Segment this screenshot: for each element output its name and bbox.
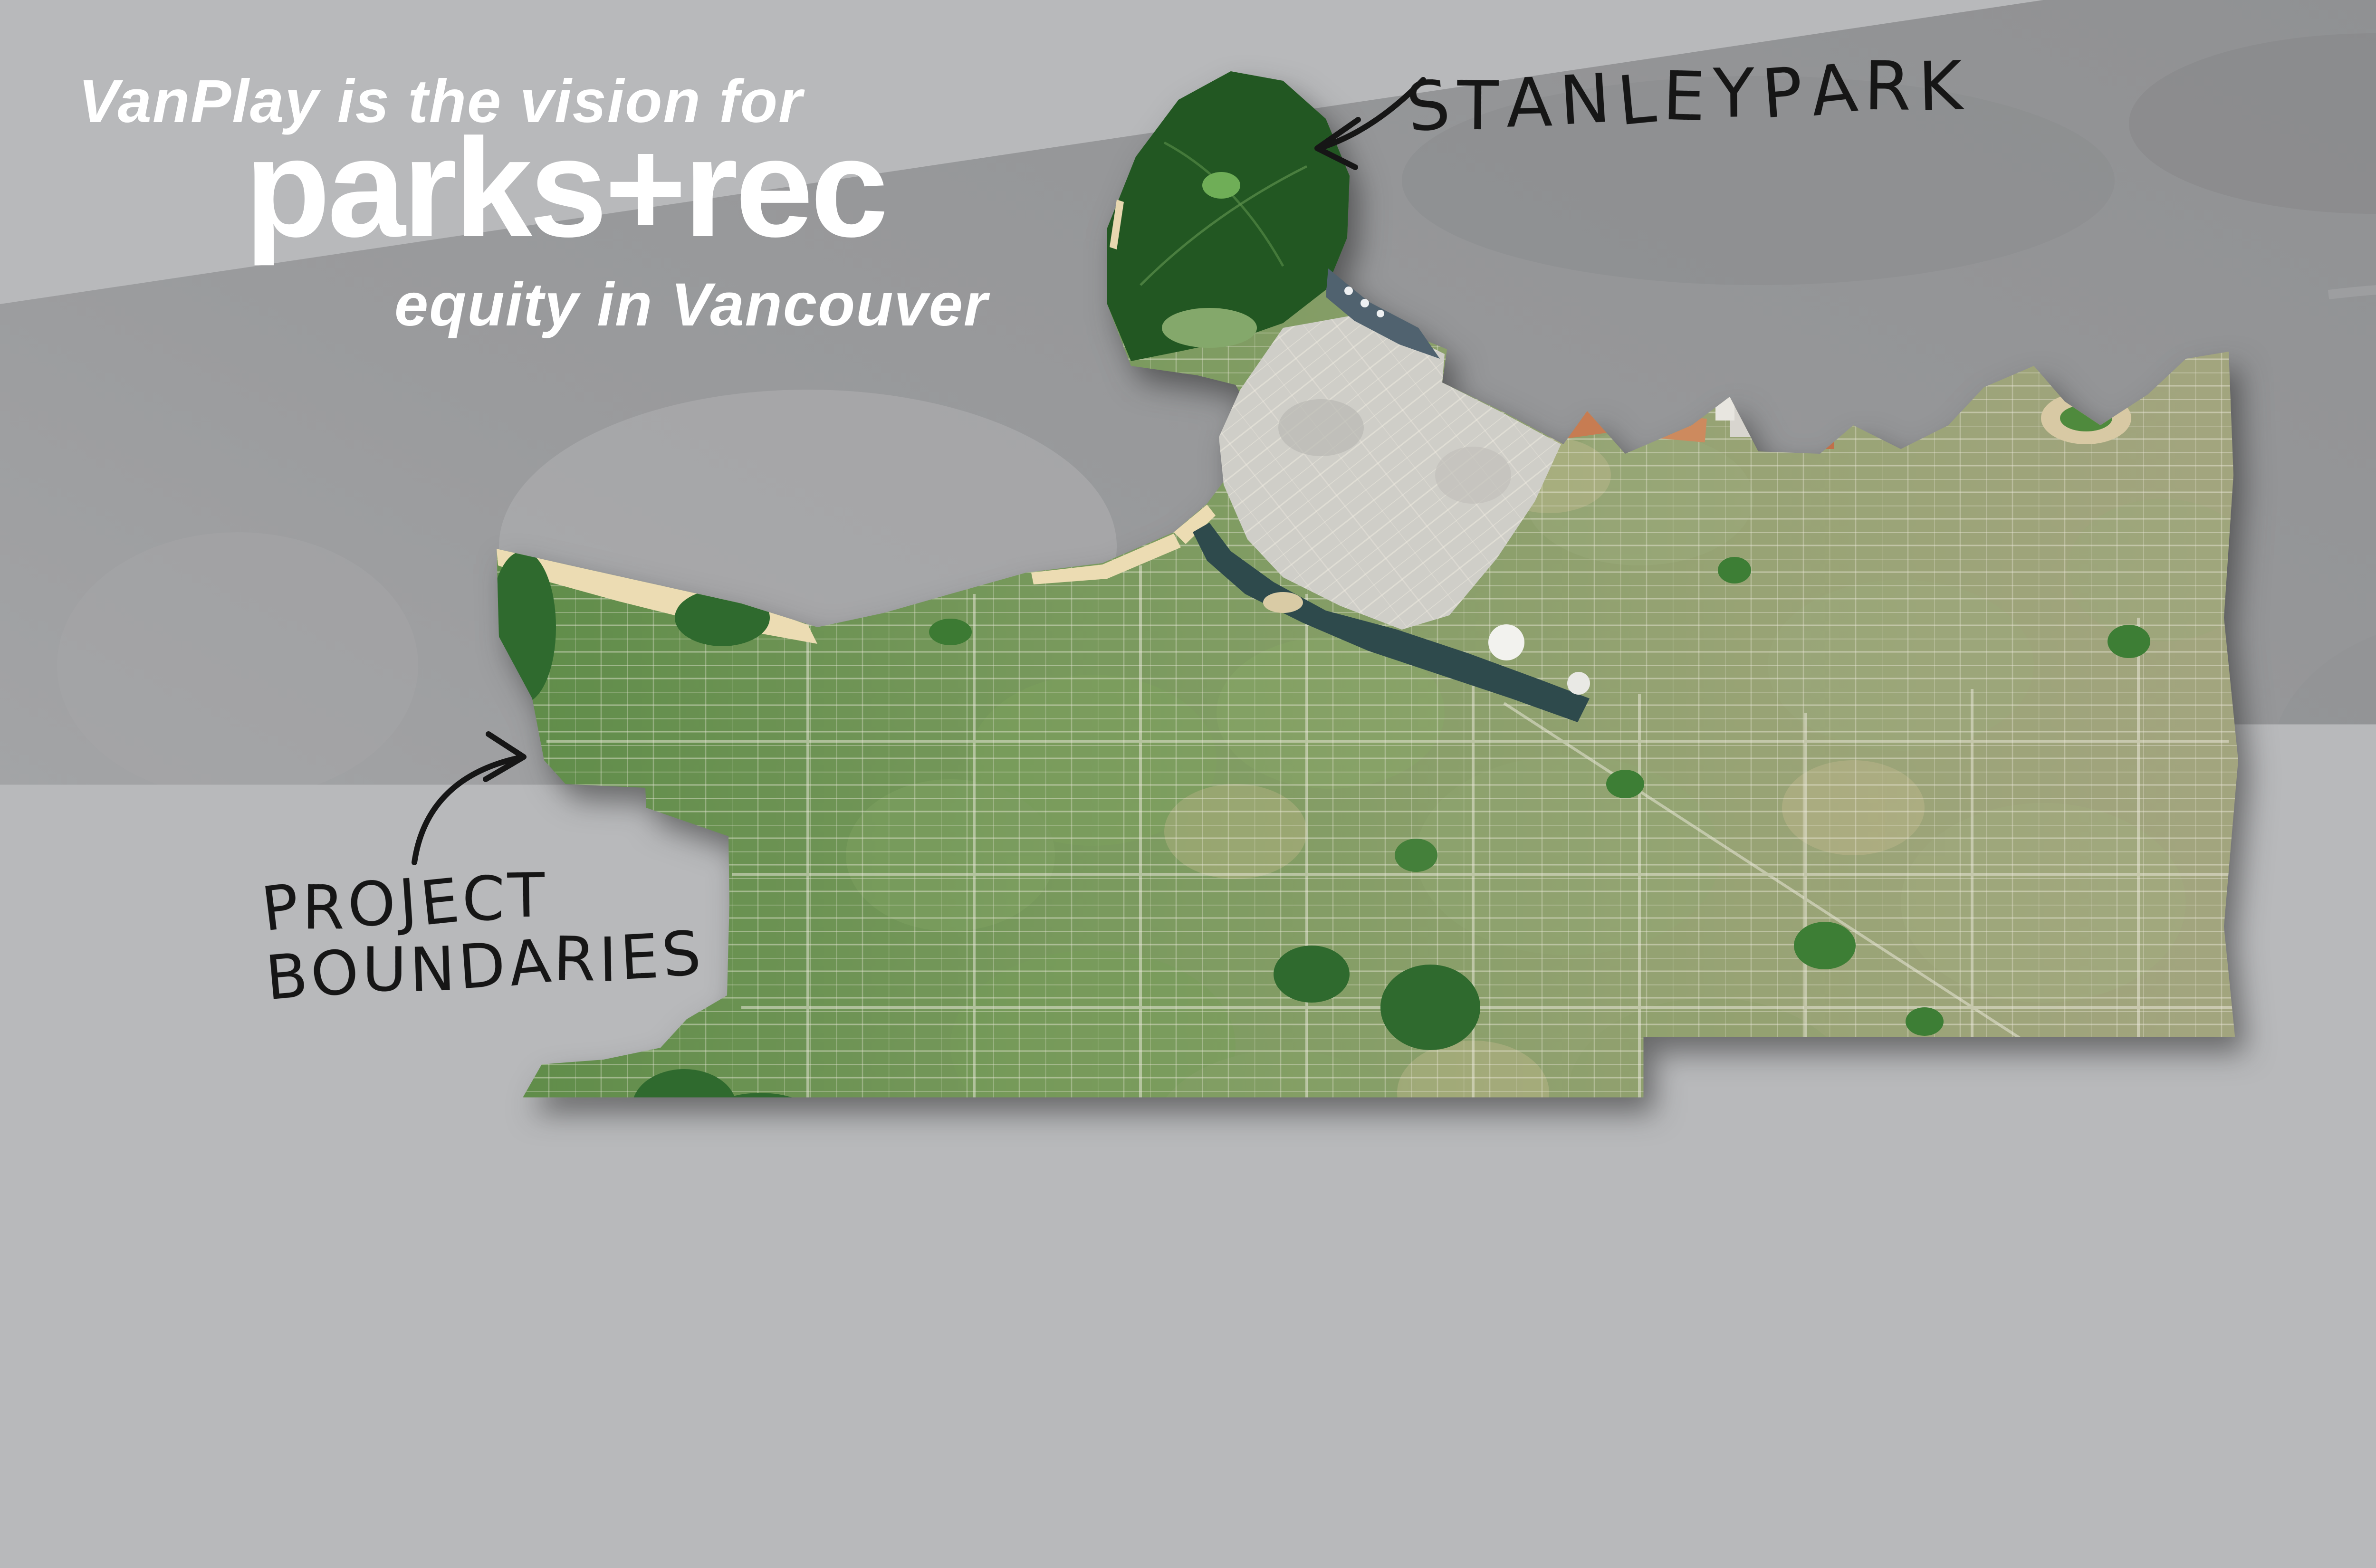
beaver-lake: [1202, 172, 1240, 199]
north-compass-icon: N: [191, 1137, 347, 1429]
title-line-3: equity in Vancouver: [394, 270, 988, 340]
granville-island: [1263, 592, 1303, 613]
science-world-dome: [1567, 672, 1590, 695]
project-boundaries-arrow: [414, 734, 524, 862]
title-line-2: parks+rec: [245, 107, 885, 268]
vanplay-poster: N VanPlay is the vision for parks+rec eq…: [0, 0, 2376, 1568]
lost-lagoon: [1162, 308, 1257, 348]
project-boundaries-label: PROJECTBOUNDARIES: [260, 854, 705, 1011]
bc-place-dome: [1488, 624, 1524, 660]
compass-north-label: N: [232, 1270, 308, 1384]
